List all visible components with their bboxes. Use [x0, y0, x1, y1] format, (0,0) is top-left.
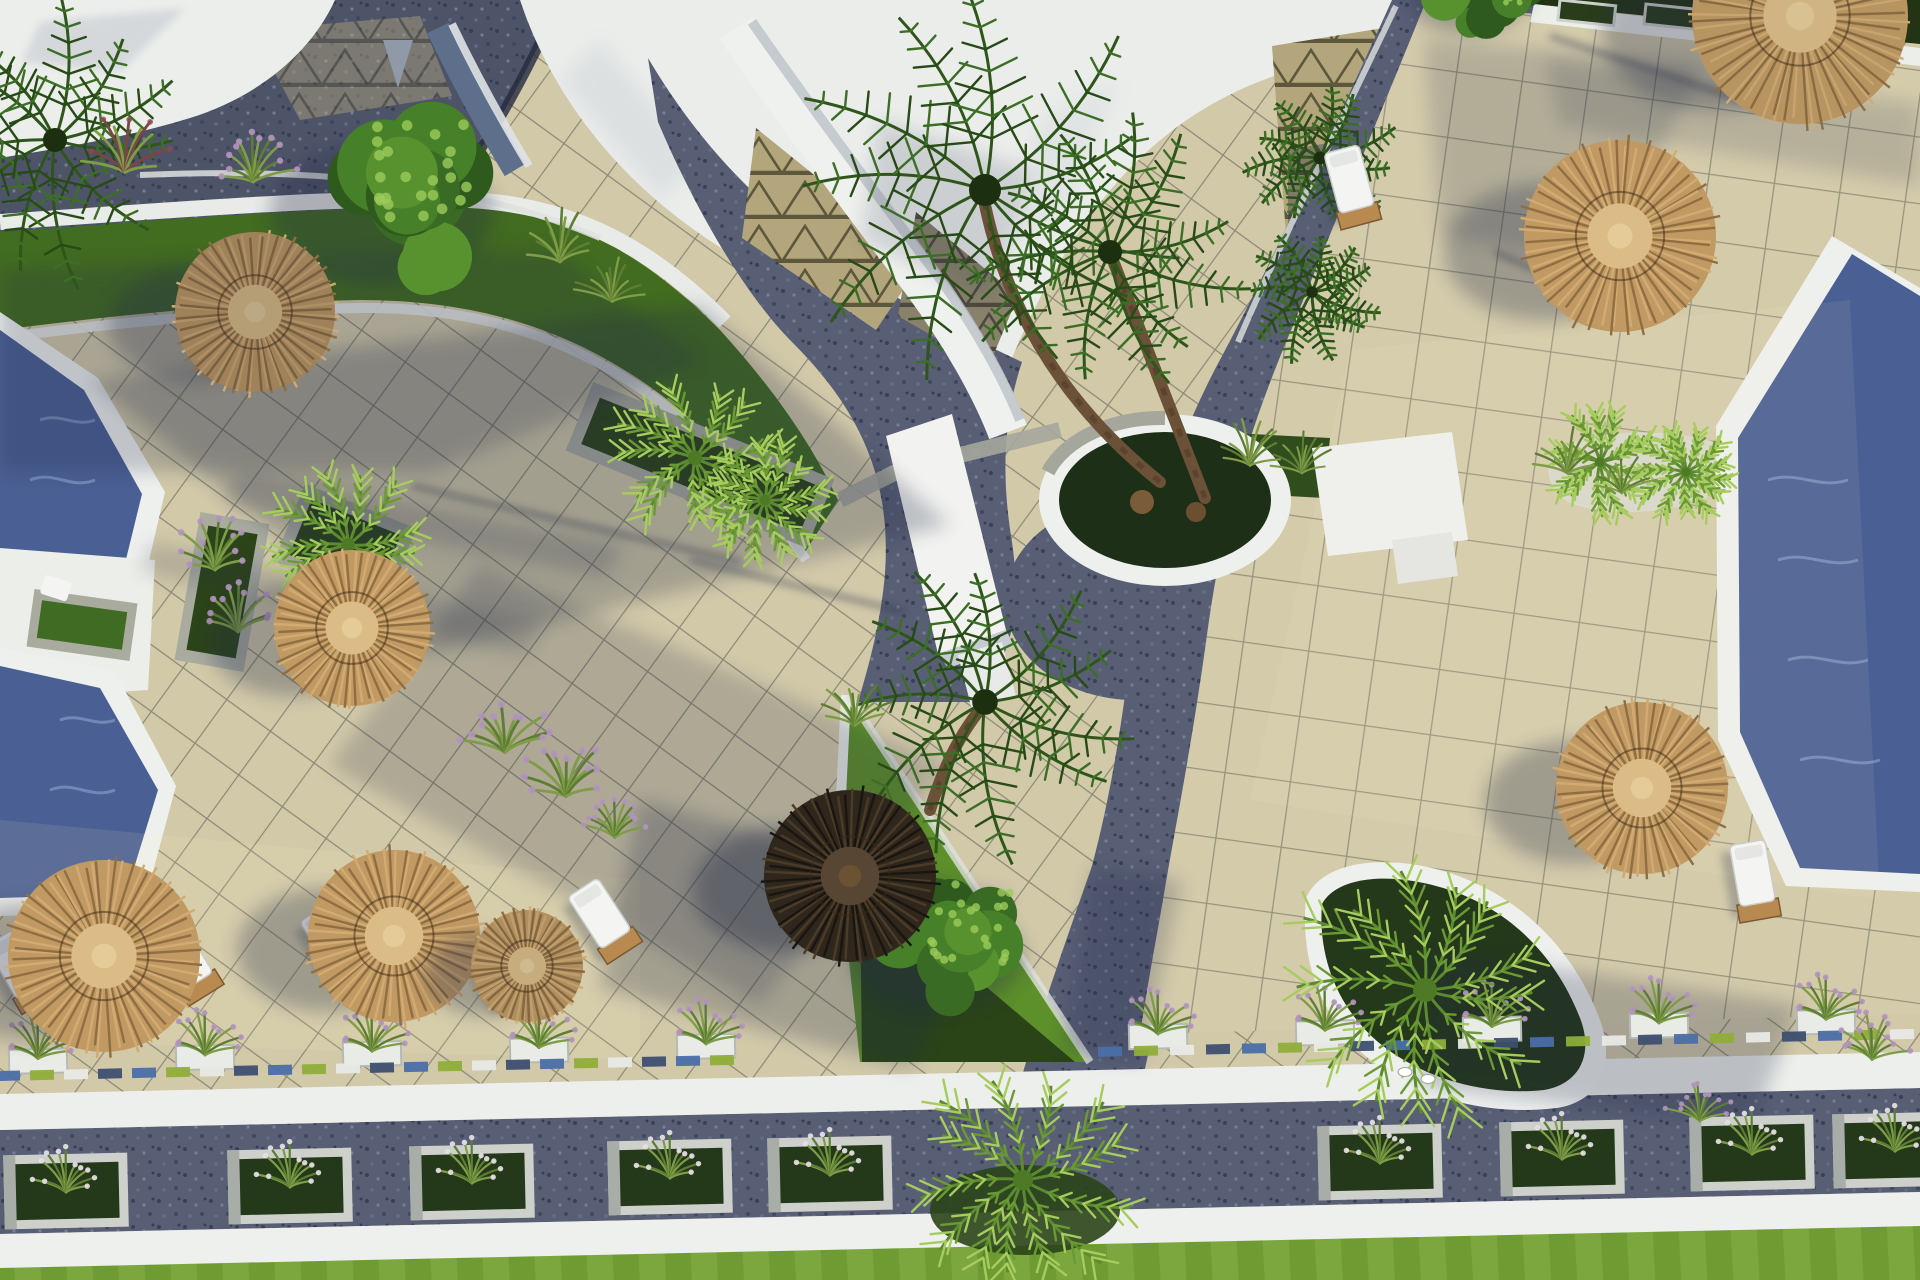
- frond-leaflet: [1355, 947, 1374, 948]
- flower-plume: [643, 824, 649, 830]
- path-planter-box: [767, 1125, 893, 1212]
- frond-leaflet: [784, 522, 794, 523]
- frond-leaflet: [1340, 270, 1341, 285]
- flower-plume: [277, 142, 283, 148]
- frond-leaflet: [921, 786, 946, 787]
- flower-plume: [1885, 1034, 1891, 1040]
- flower-plume: [268, 135, 274, 141]
- umbrella-cap: [92, 944, 117, 969]
- flower-plume: [622, 799, 628, 805]
- frond-leaflet: [305, 523, 317, 525]
- frond-leaflet: [314, 551, 323, 552]
- accent-tile: [1494, 1038, 1518, 1049]
- accent-tile: [1242, 1043, 1266, 1054]
- frond-leaflet: [994, 235, 1040, 237]
- frond-leaflet: [1587, 422, 1588, 433]
- frond-leaflet: [1058, 146, 1059, 176]
- frond-leaflet: [1272, 131, 1273, 140]
- frond-leaflet: [318, 490, 320, 505]
- frond-leaflet: [1621, 456, 1630, 457]
- frond-leaflet: [1033, 661, 1034, 692]
- frond-leaflet: [1135, 331, 1158, 332]
- frond-leaflet: [1583, 416, 1584, 428]
- flower-plume: [178, 548, 184, 554]
- leaf-highlight: [372, 136, 383, 147]
- frond-leaflet: [1019, 661, 1020, 697]
- frond-leaflet: [1455, 1023, 1469, 1024]
- frond-leaflet: [823, 92, 824, 102]
- flower-plume: [1695, 1081, 1700, 1086]
- frond-leaflet: [1322, 341, 1334, 342]
- red-plume: [167, 146, 173, 152]
- frond-leaflet: [1006, 274, 1040, 275]
- flower-plume: [478, 712, 485, 719]
- accent-tile: [1278, 1042, 1302, 1053]
- flower-plume: [490, 713, 497, 720]
- accent-tile: [1818, 1030, 1842, 1041]
- frond-leaflet: [1673, 491, 1674, 500]
- frond-leaflet: [1580, 480, 1581, 490]
- frond-leaflet: [1712, 451, 1723, 453]
- flower-plume: [229, 516, 235, 522]
- frond-leaflet: [996, 1164, 1005, 1165]
- frond-leaflet: [1387, 965, 1399, 966]
- flower-plume: [581, 822, 587, 828]
- palm-center: [972, 689, 998, 715]
- frond-leaflet: [1715, 447, 1727, 449]
- frond-leaflet: [1709, 488, 1719, 489]
- frond-leaflet: [920, 769, 950, 771]
- leaf-highlight: [970, 925, 978, 933]
- accent-tile: [132, 1068, 156, 1079]
- flower-plume: [236, 138, 242, 144]
- flower-plume: [479, 721, 486, 728]
- frond-leaflet: [1137, 254, 1138, 271]
- umbrella-cap: [1608, 224, 1633, 249]
- flower-plume: [593, 765, 600, 772]
- flower-plume: [238, 529, 244, 535]
- flower-plume: [219, 596, 225, 602]
- frond-leaflet: [749, 485, 756, 486]
- frond-leaflet: [1714, 490, 1725, 491]
- flower-plume: [517, 714, 524, 721]
- flower-plume: [210, 596, 216, 602]
- frond-leaflet: [901, 31, 911, 32]
- frond-leaflet: [1583, 476, 1584, 485]
- frond-leaflet: [314, 527, 324, 528]
- flower-plume: [599, 799, 605, 805]
- frond-leaflet: [393, 467, 394, 487]
- flower-plume: [1716, 1097, 1721, 1102]
- accent-tile: [404, 1062, 428, 1073]
- frond-leaflet: [1572, 493, 1573, 506]
- flower-plume: [218, 173, 224, 179]
- accent-tile: [574, 1058, 598, 1069]
- leaf-highlight: [994, 924, 1002, 932]
- leaf-highlight: [455, 195, 466, 206]
- accent-tile: [1350, 1041, 1374, 1052]
- frond-leaflet: [8, 243, 21, 244]
- frond-leaflet: [709, 477, 718, 478]
- frond-leaflet: [1641, 488, 1653, 489]
- frond-leaflet: [1275, 240, 1282, 241]
- palm-center: [43, 128, 67, 152]
- frond-leaflet: [807, 537, 823, 539]
- flower-plume: [1724, 1111, 1729, 1116]
- accent-tile: [166, 1067, 190, 1078]
- frond-leaflet: [1475, 1040, 1495, 1041]
- frond-leaflet: [1035, 328, 1051, 329]
- frond-leaflet: [678, 471, 679, 479]
- frond-leaflet: [717, 431, 718, 441]
- umbrella-shade-overlay: [175, 232, 335, 392]
- frond-leaflet: [670, 435, 680, 436]
- accent-tile: [1134, 1046, 1158, 1057]
- frond-leaflet: [795, 530, 808, 531]
- frond-leaflet: [1019, 188, 1020, 196]
- frond-leaflet: [329, 505, 330, 516]
- palm-center: [1098, 240, 1122, 264]
- path-planter-box: [607, 1128, 733, 1215]
- accent-tile: [438, 1061, 462, 1072]
- white-bird: [1398, 1068, 1412, 1077]
- frond-leaflet: [1071, 206, 1100, 207]
- frond-leaflet: [1577, 484, 1578, 495]
- box-edge: [409, 1146, 423, 1220]
- accent-tile: [370, 1062, 394, 1073]
- path-planter-box: [1832, 1101, 1920, 1188]
- flower-plume: [546, 729, 553, 736]
- path-planter-box: [3, 1142, 129, 1229]
- flower-plume: [1678, 1106, 1683, 1111]
- frond-leaflet: [779, 517, 788, 518]
- frond-leaflet: [1627, 454, 1637, 455]
- flower-plume: [1885, 1021, 1891, 1027]
- flower-plume: [1838, 1027, 1844, 1033]
- frond-leaflet: [1071, 220, 1105, 221]
- leaf-highlight: [458, 119, 469, 130]
- frond-leaflet: [1575, 404, 1576, 419]
- leaf-highlight: [953, 919, 961, 927]
- frond-leaflet: [305, 554, 316, 555]
- box-edge: [1832, 1114, 1846, 1188]
- box-edge: [767, 1138, 781, 1212]
- palm-center: [1306, 286, 1318, 298]
- accent-tile: [1674, 1034, 1698, 1045]
- frond-leaflet: [1694, 493, 1695, 502]
- circular-planter-soil: [1059, 432, 1271, 568]
- frond-leaflet: [660, 491, 661, 505]
- frond-leaflet: [1403, 944, 1405, 956]
- frond-leaflet: [650, 506, 651, 524]
- frond-leaflet: [728, 542, 729, 558]
- leaf-highlight: [437, 204, 448, 215]
- frond-leaflet: [1050, 228, 1052, 273]
- leaf-highlight: [400, 172, 411, 183]
- flower-plume: [249, 129, 255, 135]
- frond-leaflet: [915, 582, 924, 583]
- flower-plume: [539, 734, 546, 741]
- accent-tile: [234, 1065, 258, 1076]
- frond-leaflet: [975, 1153, 988, 1154]
- frond-leaflet: [1706, 510, 1707, 524]
- frond-leaflet: [1248, 169, 1249, 176]
- frond-leaflet: [1319, 333, 1333, 334]
- frond-leaflet: [1650, 454, 1661, 455]
- frond-leaflet: [1281, 340, 1293, 341]
- path-planter-box: [409, 1133, 535, 1220]
- flower-plume: [186, 561, 192, 567]
- frond-leaflet: [385, 487, 386, 503]
- render-stage: Top-down 3D rendering of a resort courty…: [0, 0, 1920, 1280]
- frond-leaflet: [790, 526, 802, 527]
- frond-leaflet: [1075, 145, 1076, 170]
- frond-leaflet: [924, 821, 939, 822]
- frond-leaflet: [654, 498, 655, 514]
- flower-plume: [1863, 1010, 1869, 1016]
- palm-center: [1013, 1170, 1033, 1190]
- frond-leaflet: [1069, 180, 1090, 181]
- frond-leaflet: [1371, 956, 1386, 957]
- frond-leaflet: [1557, 481, 1569, 482]
- flower-plume: [277, 157, 283, 163]
- leaf-highlight: [445, 172, 456, 183]
- accent-tile: [0, 1071, 20, 1082]
- accent-tile: [336, 1063, 360, 1074]
- frond-leaflet: [1718, 491, 1730, 492]
- frond-leaflet: [1076, 367, 1084, 369]
- box-edge: [1317, 1126, 1331, 1200]
- frond-leaflet: [1206, 221, 1207, 233]
- accent-tile: [1890, 1029, 1914, 1040]
- flower-plume: [592, 747, 599, 754]
- leaf-highlight: [385, 212, 396, 223]
- frond-leaflet: [1445, 1014, 1456, 1015]
- frond-leaflet: [138, 89, 140, 106]
- accent-tile: [1098, 1046, 1122, 1057]
- palm-center: [1682, 468, 1691, 477]
- accent-tile: [1602, 1035, 1626, 1046]
- flower-plume: [236, 579, 242, 585]
- frond-leaflet: [1042, 146, 1043, 181]
- leaf-highlight: [382, 146, 393, 157]
- leaf-highlight: [442, 158, 453, 169]
- leaf-highlight: [951, 880, 959, 888]
- frond-leaflet: [988, 1193, 998, 1194]
- leaf-highlight: [416, 190, 427, 201]
- flower-plume: [498, 701, 505, 708]
- accent-tile: [1710, 1033, 1734, 1044]
- frond-leaflet: [1669, 463, 1676, 464]
- flower-plume: [611, 796, 617, 802]
- frond-leaflet: [1313, 310, 1334, 312]
- leaf-highlight: [972, 903, 980, 911]
- leaf-highlight: [445, 146, 456, 157]
- frond-leaflet: [1344, 123, 1358, 125]
- flower-plume: [256, 135, 262, 141]
- umbrella-cap: [839, 865, 861, 887]
- frond-leaflet: [1663, 460, 1671, 461]
- leaf-highlight: [402, 120, 413, 131]
- frond-leaflet: [1705, 486, 1714, 487]
- frond-leaflet: [1128, 317, 1156, 318]
- flower-plume: [206, 618, 212, 624]
- frond-leaflet: [780, 482, 782, 490]
- palm-trunk-base-2: [1186, 502, 1206, 522]
- frond-leaflet: [1008, 1199, 1009, 1208]
- accent-tile: [64, 1069, 88, 1080]
- accent-tile: [1530, 1037, 1554, 1048]
- flower-plume: [593, 785, 600, 792]
- frond-leaflet: [711, 439, 712, 447]
- flower-plume: [1679, 1101, 1684, 1106]
- flower-plume: [232, 548, 238, 554]
- flower-plume: [586, 815, 592, 821]
- leaf-highlight: [983, 941, 991, 949]
- leaf-highlight: [994, 903, 1002, 911]
- path-planter-box: [1499, 1109, 1625, 1196]
- palm-center: [969, 174, 1001, 206]
- accent-tile: [1638, 1034, 1662, 1045]
- frond-leaflet: [964, 1207, 979, 1209]
- leaf-highlight: [929, 939, 937, 947]
- frond-leaflet: [1630, 495, 1645, 496]
- frond-leaflet: [723, 423, 724, 435]
- frond-leaflet: [677, 442, 685, 443]
- frond-leaflet: [1350, 108, 1359, 109]
- accent-tile: [30, 1070, 54, 1081]
- flower-plume: [1857, 1028, 1863, 1034]
- frond-leaflet: [12, 258, 21, 259]
- umbrella-cap: [1631, 777, 1653, 799]
- flower-plume: [294, 166, 300, 172]
- flower-plume: [579, 747, 586, 754]
- frond-leaflet: [1635, 491, 1648, 492]
- flower-plume: [1882, 1014, 1888, 1020]
- frond-leaflet: [1499, 1054, 1524, 1055]
- frond-leaflet: [1326, 348, 1335, 349]
- frond-leaflet: [986, 1158, 997, 1159]
- frond-leaflet: [1024, 310, 1046, 311]
- umbrella-shade-overlay: [471, 910, 583, 1022]
- frond-leaflet: [908, 48, 924, 50]
- frond-leaflet: [927, 838, 936, 839]
- frond-leaflet: [1386, 1004, 1397, 1005]
- leaf-highlight: [428, 175, 439, 186]
- box-edge: [1689, 1117, 1703, 1191]
- frond-leaflet: [1120, 739, 1121, 748]
- frond-leaflet: [1151, 359, 1165, 360]
- box-edge: [3, 1155, 17, 1229]
- frond-leaflet: [752, 510, 753, 517]
- frond-leaflet: [324, 497, 325, 510]
- frond-leaflet: [1511, 1060, 1539, 1062]
- frond-leaflet: [1344, 1028, 1364, 1030]
- frond-leaflet: [1647, 484, 1658, 485]
- frond-leaflet: [738, 524, 739, 536]
- frond-leaflet: [728, 415, 730, 429]
- red-plume: [100, 117, 106, 123]
- aerial-resort-render: Top-down 3D rendering of a resort courty…: [0, 0, 1920, 1280]
- leaf-highlight: [418, 211, 429, 222]
- frond-leaflet: [1338, 939, 1360, 940]
- frond-leaflet: [1279, 130, 1280, 141]
- accent-tile: [676, 1056, 700, 1067]
- frond-leaflet: [389, 477, 390, 495]
- frond-leaflet: [662, 430, 673, 432]
- frond-leaflet: [747, 493, 754, 495]
- umbrella-cap: [383, 925, 405, 947]
- frond-leaflet: [1551, 485, 1564, 486]
- frond-leaflet: [1678, 482, 1679, 489]
- frond-leaflet: [922, 803, 942, 804]
- palm-center: [1413, 978, 1437, 1002]
- frond-leaflet: [1701, 484, 1709, 485]
- frond-leaflet: [776, 487, 777, 494]
- frond-leaflet: [731, 536, 732, 551]
- frond-leaflet: [1281, 332, 1295, 333]
- frond-leaflet: [163, 80, 164, 89]
- flower-plume: [239, 557, 245, 563]
- frond-leaflet: [1334, 270, 1335, 287]
- frond-leaflet: [1465, 1032, 1482, 1033]
- accent-tile: [1206, 1044, 1230, 1055]
- flower-plume: [1907, 1048, 1913, 1054]
- flower-plume: [1868, 1022, 1874, 1028]
- flower-plume: [528, 787, 535, 794]
- frond-leaflet: [1587, 472, 1588, 480]
- leaf-highlight: [372, 122, 383, 133]
- flower-plume: [521, 773, 528, 780]
- leaf-highlight: [957, 899, 965, 907]
- flower-plume: [468, 731, 475, 738]
- palm-center: [688, 451, 702, 465]
- frond-leaflet: [1347, 116, 1359, 117]
- frond-leaflet: [1177, 146, 1186, 147]
- frond-leaflet: [1366, 312, 1367, 321]
- accent-tile: [472, 1060, 496, 1071]
- frond-leaflet: [845, 91, 847, 108]
- accent-tile: [98, 1068, 122, 1079]
- frond-leaflet: [1575, 488, 1576, 500]
- flower-plume: [594, 804, 600, 810]
- accent-tile: [200, 1066, 224, 1077]
- flower-plume: [226, 166, 232, 172]
- flower-plume: [1684, 1095, 1689, 1100]
- palm-center: [760, 495, 771, 506]
- accent-tile: [710, 1055, 734, 1066]
- frond-leaflet: [1590, 469, 1591, 475]
- leaf-highlight: [997, 888, 1005, 896]
- flower-plume: [1846, 1041, 1852, 1047]
- frond-leaflet: [1699, 502, 1700, 513]
- frond-leaflet: [1644, 452, 1656, 453]
- flower-plume: [563, 755, 570, 762]
- frond-leaflet: [1283, 348, 1292, 349]
- flower-plume: [1663, 1106, 1668, 1111]
- frond-leaflet: [1278, 245, 1287, 247]
- frond-leaflet: [1329, 355, 1336, 356]
- frond-leaflet: [1327, 270, 1328, 289]
- flower-plume: [178, 529, 184, 535]
- accent-tile: [506, 1059, 530, 1070]
- accent-tile: [302, 1064, 326, 1075]
- frond-leaflet: [977, 274, 979, 283]
- frond-leaflet: [1668, 501, 1670, 512]
- frond-leaflet: [671, 477, 672, 487]
- path-planter-box: [1317, 1113, 1443, 1200]
- frond-leaflet: [996, 1154, 1006, 1156]
